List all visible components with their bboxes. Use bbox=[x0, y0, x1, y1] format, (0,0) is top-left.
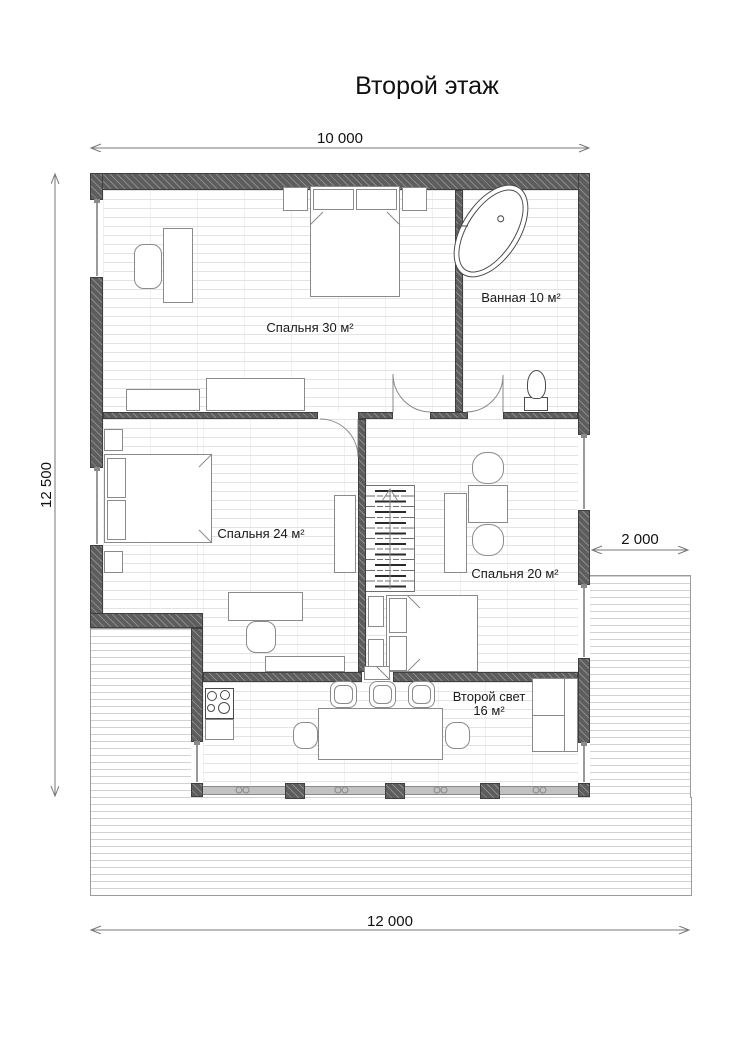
secondlight-door-leaf bbox=[364, 666, 390, 680]
deck-right bbox=[590, 575, 691, 798]
post bbox=[385, 783, 405, 799]
wall-stair bbox=[358, 419, 366, 672]
window bbox=[191, 742, 203, 783]
wall-interior bbox=[358, 412, 393, 419]
room-label-bedroom20: Спальня 20 м² bbox=[415, 567, 615, 581]
chair bbox=[246, 621, 276, 653]
wall-interior bbox=[103, 412, 318, 419]
table bbox=[468, 485, 508, 523]
post bbox=[480, 783, 500, 799]
chair bbox=[134, 244, 162, 289]
nightstand bbox=[368, 596, 384, 627]
post bbox=[285, 783, 305, 799]
wall-interior bbox=[503, 412, 578, 419]
room-label-bedroom24: Спальня 24 м² bbox=[161, 527, 361, 541]
pillow bbox=[107, 500, 126, 540]
chair bbox=[472, 524, 504, 556]
pillow bbox=[313, 189, 354, 210]
cabinet bbox=[265, 656, 345, 672]
window bbox=[578, 435, 590, 510]
wall-right bbox=[578, 783, 590, 797]
stool bbox=[330, 681, 357, 708]
window bbox=[90, 200, 103, 277]
window bbox=[90, 468, 103, 545]
dimension-top-label: 10 000 bbox=[240, 130, 440, 147]
pillow bbox=[389, 636, 407, 671]
nightstand bbox=[104, 429, 123, 451]
window bbox=[578, 585, 590, 658]
wall-left bbox=[90, 173, 103, 200]
floor-plan-canvas: Второй этаж bbox=[0, 0, 744, 1051]
toilet-tank bbox=[524, 397, 548, 411]
wall-left bbox=[90, 277, 103, 468]
wall-left-lower bbox=[191, 628, 203, 742]
toilet-bowl bbox=[527, 370, 546, 399]
staircase-cutline bbox=[375, 490, 406, 590]
nightstand bbox=[402, 187, 427, 211]
pillow bbox=[389, 598, 407, 633]
nightstand bbox=[283, 187, 308, 211]
dresser bbox=[126, 389, 200, 411]
wardrobe bbox=[444, 493, 467, 573]
desk bbox=[228, 592, 303, 621]
chair bbox=[293, 722, 318, 749]
pillow bbox=[356, 189, 397, 210]
wall-step bbox=[90, 613, 203, 628]
page-title: Второй этаж bbox=[227, 72, 627, 101]
window bbox=[578, 743, 590, 783]
dimension-bottom-label: 12 000 bbox=[290, 913, 490, 930]
room-label-bedroom30: Спальня 30 м² bbox=[210, 321, 410, 335]
room-label-secondlight-line2: 16 м² bbox=[389, 704, 589, 718]
nightstand bbox=[104, 551, 123, 573]
room-label-secondlight-line1: Второй свет bbox=[389, 690, 589, 704]
desk bbox=[163, 228, 193, 303]
pillow bbox=[107, 458, 126, 498]
wall-left-lower bbox=[191, 783, 203, 797]
counter bbox=[205, 719, 234, 740]
deck-left bbox=[90, 628, 192, 798]
chair bbox=[445, 722, 470, 749]
stove bbox=[205, 688, 234, 719]
wall-interior bbox=[430, 412, 468, 419]
room-label-secondlight: Второй свет 16 м² bbox=[389, 690, 589, 719]
dimension-right-label: 2 000 bbox=[560, 531, 720, 548]
chair bbox=[472, 452, 504, 484]
dimension-left-label: 12 500 bbox=[38, 445, 54, 525]
dresser bbox=[206, 378, 305, 411]
room-label-bathroom: Ванная 10 м² bbox=[421, 291, 621, 305]
deck-bottom bbox=[90, 797, 692, 896]
